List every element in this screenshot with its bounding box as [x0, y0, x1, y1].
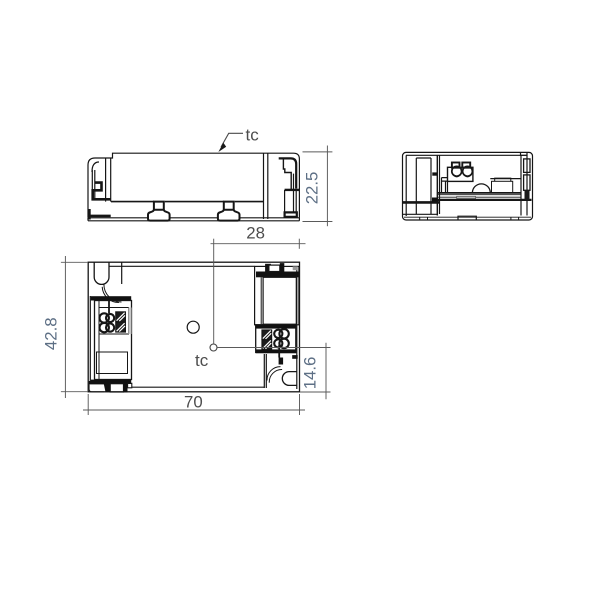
svg-text:14.6: 14.6	[301, 357, 320, 390]
svg-text:tc: tc	[195, 351, 209, 370]
svg-text:28: 28	[246, 224, 265, 243]
svg-text:tc: tc	[246, 126, 260, 145]
svg-text:22.5: 22.5	[303, 172, 322, 205]
svg-text:70: 70	[184, 393, 203, 412]
svg-text:42.8: 42.8	[42, 317, 61, 350]
